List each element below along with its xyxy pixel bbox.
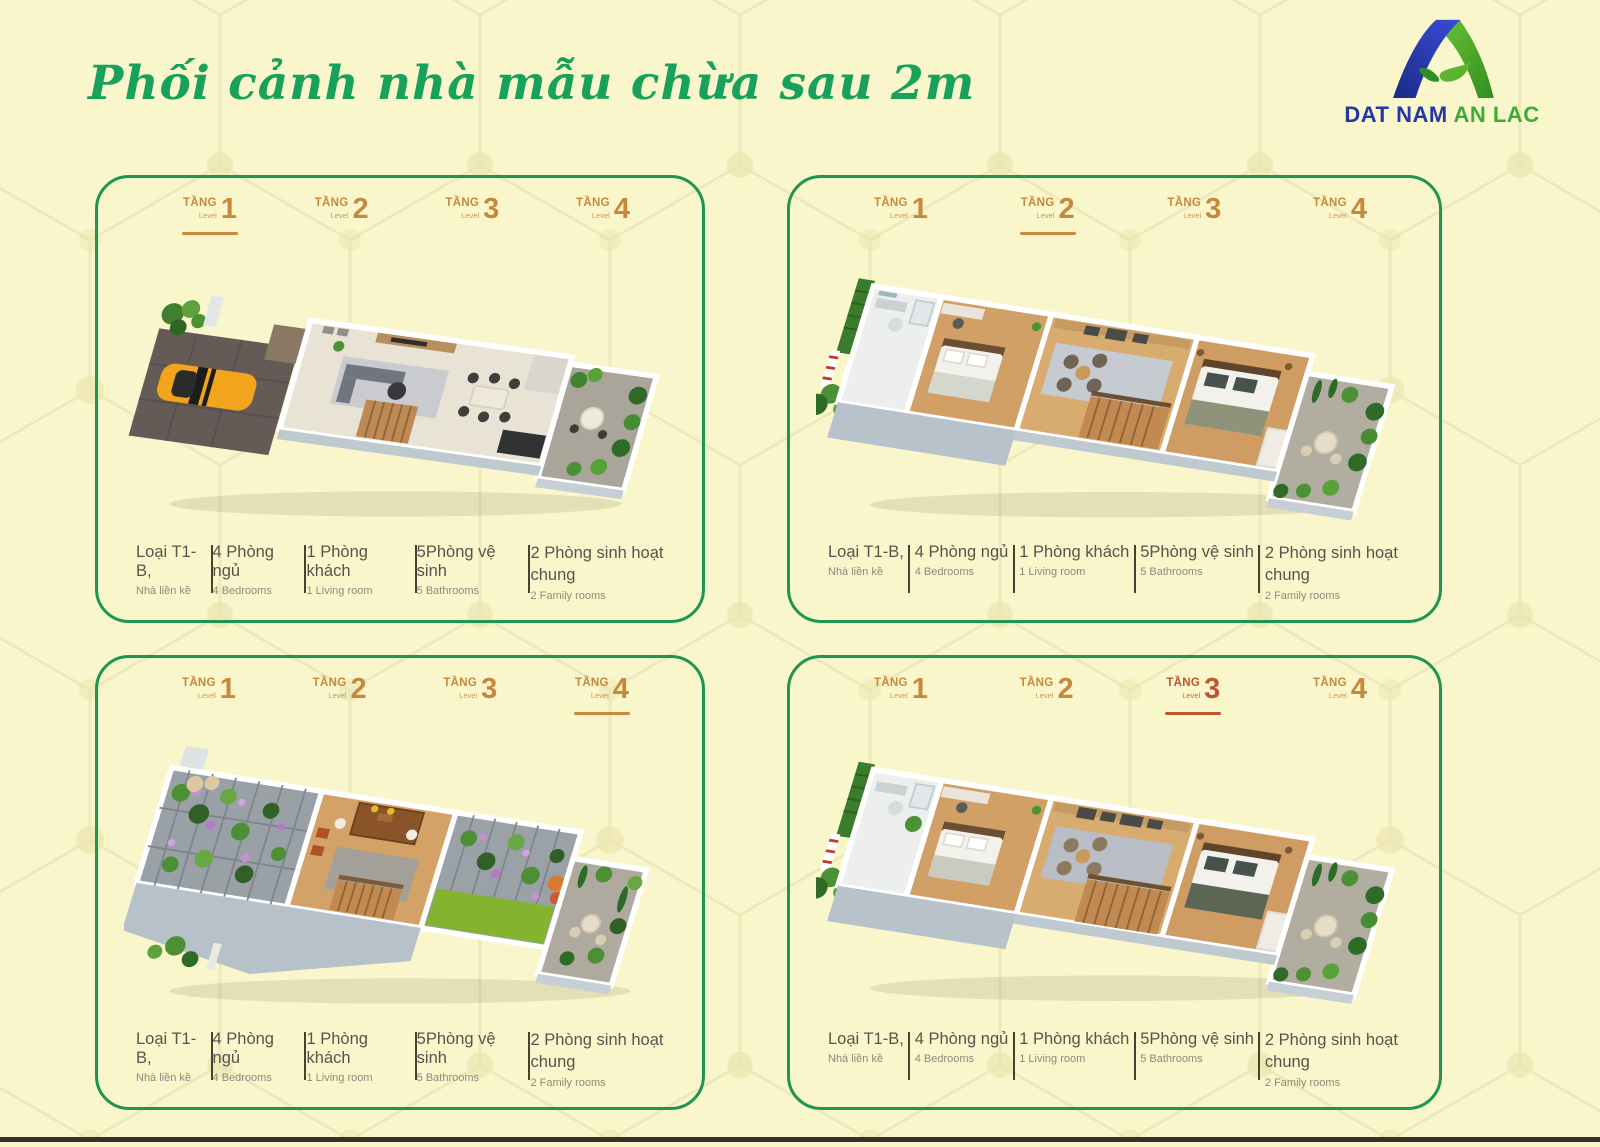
floorplan-card-level-4: TẦNGLevel 1 TẦNGLevel 2 TẦNGLevel 3 TẦNG… [95,655,705,1110]
tab-label-level: Level [459,692,477,700]
spec-en: 1 Living room [306,1072,414,1084]
tab-level-3[interactable]: TẦNGLevel 3 [443,678,497,715]
spec-familyrooms: 2 Phòng sinh hoạt chung 2 Family rooms [1265,1030,1407,1089]
logo-word-blue: DAT NAM [1344,102,1447,127]
spec-type: Loại T1-B, Nhà liền kề [136,1030,211,1084]
spec-vi: 2 Phòng sinh hoạt chung [530,1030,670,1073]
spec-bathrooms: 5Phòng vệ sinh 5 Bathrooms [417,1030,529,1084]
tab-label-tang: TẦNG [183,198,217,210]
spec-en: 4 Bedrooms [213,1072,305,1084]
tab-label-level: Level [1037,212,1055,220]
floorplan-render-level-2 [816,237,1413,541]
spec-familyrooms: 2 Phòng sinh hoạt chung 2 Family rooms [530,543,670,602]
spec-vi: 4 Phòng ngủ [915,1030,1009,1049]
tab-level-1[interactable]: TẦNGLevel 1 [874,678,928,715]
spec-en: 1 Living room [306,585,414,597]
tab-number: 1 [912,678,928,701]
tab-label-level: Level [1329,212,1347,220]
tab-label-tang: TẦNG [1167,198,1201,210]
tab-label-level: Level [1329,692,1347,700]
spec-en: 5 Bathrooms [417,1072,529,1084]
brand-logo: DAT NAM AN LAC [1332,12,1552,128]
tab-number: 3 [1204,678,1220,701]
tab-number: 4 [1351,678,1367,701]
tab-label-level: Level [331,212,349,220]
tab-level-1[interactable]: TẦNGLevel 1 [874,198,928,235]
page-title: Phối cảnh nhà mẫu chừa sau 2m [88,56,975,111]
spec-livingroom: 1 Phòng khách 1 Living room [306,1030,414,1084]
floorplan-card-level-2: TẦNGLevel 1 TẦNGLevel 2 TẦNGLevel 3 TẦNG… [787,175,1442,623]
spec-familyrooms: 2 Phòng sinh hoạt chung 2 Family rooms [530,1030,670,1089]
spec-en: Nhà liền kề [828,1053,904,1065]
tab-label-tang: TẦNG [575,678,609,690]
spec-row: Loại T1-B, Nhà liền kề 4 Phòng ngủ 4 Bed… [816,543,1413,606]
spec-vi: 2 Phòng sinh hoạt chung [530,543,670,586]
spec-bedrooms: 4 Phòng ngủ 4 Bedrooms [915,1030,1009,1065]
spec-en: Nhà liền kề [828,566,904,578]
spec-en: 4 Bedrooms [213,585,305,597]
spec-en: 5 Bathrooms [1140,566,1254,578]
logo-word-green: AN LAC [1453,102,1539,127]
spec-en: 2 Family rooms [1265,590,1407,602]
tab-label-tang: TẦNG [1166,678,1200,690]
tab-level-2[interactable]: TẦNGLevel 2 [1020,678,1074,715]
tab-label-level: Level [890,212,908,220]
tab-label-tang: TẦNG [443,678,477,690]
tab-label-tang: TẦNG [313,678,347,690]
tab-level-3[interactable]: TẦNGLevel 3 [1165,678,1221,715]
spec-type: Loại T1-B, Nhà liền kề [828,1030,904,1065]
spec-bathrooms: 5Phòng vệ sinh 5 Bathrooms [417,543,529,597]
spec-en: 2 Family rooms [530,590,670,602]
spec-vi: 4 Phòng ngủ [213,543,305,581]
spec-vi: 1 Phòng khách [306,1030,414,1068]
tab-label-tang: TẦNG [315,198,349,210]
divider [1134,1032,1136,1080]
spec-en: 1 Living room [1019,1053,1129,1065]
spec-vi: 4 Phòng ngủ [915,543,1009,562]
tab-label-level: Level [592,212,610,220]
floorplan-render-level-3 [816,717,1413,1028]
floorplan-card-level-3: TẦNGLevel 1 TẦNGLevel 2 TẦNGLevel 3 TẦNG… [787,655,1442,1110]
spec-vi: Loại T1-B, [136,1030,211,1068]
tab-label-level: Level [198,692,216,700]
spec-en: 5 Bathrooms [417,585,529,597]
tab-label-level: Level [1036,692,1054,700]
divider [1258,1032,1260,1080]
divider [1134,545,1136,593]
tab-number: 2 [1057,678,1073,701]
tab-number: 3 [483,198,499,221]
tab-level-4[interactable]: TẦNGLevel 4 [1313,678,1367,715]
divider [1258,545,1260,593]
tab-label-level: Level [591,692,609,700]
level-tabs: TẦNGLevel 1 TẦNGLevel 2 TẦNGLevel 3 [124,198,676,235]
tab-number: 2 [350,678,366,701]
floorplan-render-level-4 [124,717,676,1028]
tab-level-2[interactable]: TẦNGLevel 2 [313,678,367,715]
tab-label-level: Level [329,692,347,700]
tab-number: 1 [221,198,237,221]
tab-level-3[interactable]: TẦNGLevel 3 [445,198,499,235]
active-tab-underline [1165,712,1221,715]
tab-number: 3 [1205,198,1221,221]
spec-bedrooms: 4 Phòng ngủ 4 Bedrooms [213,543,305,597]
bottom-edge-strip [0,1137,1600,1142]
floorplan-render-level-1 [124,237,676,541]
spec-vi: 1 Phòng khách [1019,1030,1129,1049]
spec-en: 5 Bathrooms [1140,1053,1254,1065]
spec-vi: 5Phòng vệ sinh [1140,1030,1254,1049]
spec-vi: Loại T1-B, [828,1030,904,1049]
tab-label-tang: TẦNG [874,678,908,690]
tab-number: 3 [481,678,497,701]
spec-bathrooms: 5Phòng vệ sinh 5 Bathrooms [1140,1030,1254,1065]
level-tabs: TẦNGLevel 1 TẦNGLevel 2 TẦNGLevel 3 TẦNG… [816,678,1413,715]
spec-vi: 2 Phòng sinh hoạt chung [1265,1030,1407,1073]
active-tab-underline [574,712,630,715]
tab-number: 4 [614,198,630,221]
spec-livingroom: 1 Phòng khách 1 Living room [306,543,414,597]
spec-vi: Loại T1-B, [828,543,904,562]
spec-en: 4 Bedrooms [915,1053,1009,1065]
tab-label-tang: TẦNG [1313,678,1347,690]
tab-label-tang: TẦNG [445,198,479,210]
tab-label-level: Level [199,212,217,220]
tab-label-level: Level [1183,212,1201,220]
tab-label-level: Level [1182,692,1200,700]
spec-bedrooms: 4 Phòng ngủ 4 Bedrooms [213,1030,305,1084]
active-tab-underline [182,232,238,235]
spec-row: Loại T1-B, Nhà liền kề 4 Phòng ngủ 4 Bed… [816,1030,1413,1093]
spec-vi: 2 Phòng sinh hoạt chung [1265,543,1407,586]
spec-row: Loại T1-B, Nhà liền kề 4 Phòng ngủ 4 Bed… [124,543,676,606]
spec-vi: 1 Phòng khách [306,543,414,581]
logo-mark-mountain-icon [1383,12,1501,100]
tab-label-tang: TẦNG [576,198,610,210]
tab-label-level: Level [461,212,479,220]
divider [1013,1032,1015,1080]
tab-label-tang: TẦNG [1020,678,1054,690]
spec-vi: 1 Phòng khách [1019,543,1129,562]
tab-label-tang: TẦNG [874,198,908,210]
tab-number: 1 [220,678,236,701]
spec-bedrooms: 4 Phòng ngủ 4 Bedrooms [915,543,1009,578]
tab-label-level: Level [890,692,908,700]
spec-row: Loại T1-B, Nhà liền kề 4 Phòng ngủ 4 Bed… [124,1030,676,1093]
spec-en: Nhà liền kề [136,1072,211,1084]
divider [908,545,910,593]
spec-en: 4 Bedrooms [915,566,1009,578]
tab-number: 2 [1058,198,1074,221]
tab-number: 4 [613,678,629,701]
tab-label-tang: TẦNG [182,678,216,690]
level-tabs: TẦNGLevel 1 TẦNGLevel 2 TẦNGLevel 3 TẦNG… [124,678,676,715]
tab-level-4[interactable]: TẦNGLevel 4 [576,198,630,235]
spec-vi: 4 Phòng ngủ [213,1030,305,1068]
tab-level-1[interactable]: TẦNGLevel 1 [182,198,238,235]
tab-number: 2 [353,198,369,221]
spec-vi: 5Phòng vệ sinh [1140,543,1254,562]
tab-label-tang: TẦNG [1021,198,1055,210]
divider [908,1032,910,1080]
spec-vi: Loại T1-B, [136,543,211,581]
tab-level-2[interactable]: TẦNGLevel 2 [1020,198,1076,235]
tab-level-4[interactable]: TẦNGLevel 4 [1313,198,1367,235]
spec-en: 2 Family rooms [530,1077,670,1089]
spec-en: 2 Family rooms [1265,1077,1407,1089]
active-tab-underline [1020,232,1076,235]
tab-number: 1 [912,198,928,221]
tab-level-4[interactable]: TẦNGLevel 4 [574,678,630,715]
spec-vi: 5Phòng vệ sinh [417,543,529,581]
logo-wordmark: DAT NAM AN LAC [1332,102,1552,128]
spec-bathrooms: 5Phòng vệ sinh 5 Bathrooms [1140,543,1254,578]
spec-familyrooms: 2 Phòng sinh hoạt chung 2 Family rooms [1265,543,1407,602]
spec-type: Loại T1-B, Nhà liền kề [828,543,904,578]
tab-level-2[interactable]: TẦNGLevel 2 [315,198,369,235]
tab-level-1[interactable]: TẦNGLevel 1 [182,678,236,715]
divider [1013,545,1015,593]
spec-livingroom: 1 Phòng khách 1 Living room [1019,1030,1129,1065]
tab-level-3[interactable]: TẦNGLevel 3 [1167,198,1221,235]
spec-livingroom: 1 Phòng khách 1 Living room [1019,543,1129,578]
spec-en: Nhà liền kề [136,585,211,597]
spec-type: Loại T1-B, Nhà liền kề [136,543,211,597]
tab-label-tang: TẦNG [1313,198,1347,210]
level-tabs: TẦNGLevel 1 TẦNGLevel 2 TẦNGLevel 3 TẦNG… [816,198,1413,235]
floorplan-card-level-1: TẦNGLevel 1 TẦNGLevel 2 TẦNGLevel 3 [95,175,705,623]
spec-en: 1 Living room [1019,566,1129,578]
tab-number: 4 [1351,198,1367,221]
spec-vi: 5Phòng vệ sinh [417,1030,529,1068]
